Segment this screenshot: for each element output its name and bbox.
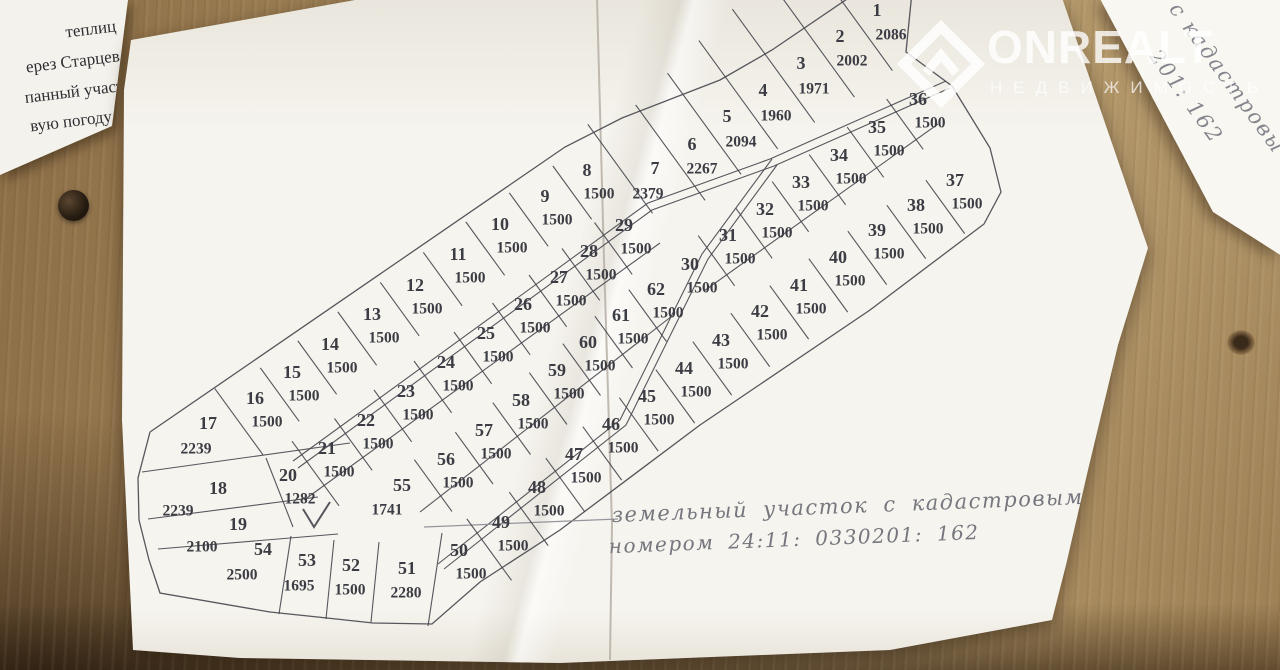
plot-number: 57 <box>475 420 493 440</box>
plot-number: 56 <box>437 449 455 469</box>
plot-divider-line <box>428 533 442 626</box>
plot-area: 1500 <box>584 186 615 203</box>
plot-divider-line <box>158 534 338 549</box>
plot-number: 36 <box>909 89 927 109</box>
cadastral-plan-drawing: 1722391615001515001415001315001215001115… <box>0 0 1280 670</box>
plot-area: 1500 <box>687 280 718 297</box>
plot-area: 1500 <box>757 327 788 344</box>
plot-number: 21 <box>318 438 336 458</box>
plot-area: 2100 <box>187 539 218 556</box>
plot-divider-line <box>279 536 291 614</box>
plot-number: 17 <box>199 413 217 433</box>
plot-number: 22 <box>357 410 375 430</box>
plot-area: 1500 <box>621 241 652 258</box>
plot-area: 1500 <box>252 414 283 431</box>
plot-number: 25 <box>477 323 495 343</box>
plot-number: 59 <box>548 360 566 380</box>
plot-area: 1500 <box>443 378 474 395</box>
plot-number: 32 <box>756 199 774 219</box>
plot-area: 1500 <box>403 407 434 424</box>
plot-number: 53 <box>298 550 316 570</box>
plot-area: 1500 <box>608 440 639 457</box>
plot-area: 1500 <box>644 412 675 429</box>
plot-number: 52 <box>342 555 360 575</box>
plot-area: 2086 <box>876 27 907 44</box>
plot-number: 29 <box>615 215 633 235</box>
plot-divider-line <box>371 542 379 622</box>
plot-number: 27 <box>550 267 568 287</box>
plot-area: 1500 <box>324 464 355 481</box>
plot-area: 1500 <box>681 384 712 401</box>
plot-area: 1500 <box>412 301 443 318</box>
plot-area: 1500 <box>556 293 587 310</box>
plot-area: 2239 <box>163 503 194 520</box>
plot-number: 5 <box>723 106 732 126</box>
plot-area: 2002 <box>837 53 868 70</box>
plot-number: 19 <box>229 514 247 534</box>
plot-number: 35 <box>868 117 886 137</box>
plot-number: 15 <box>283 362 301 382</box>
plot-number: 33 <box>792 172 810 192</box>
plot-number: 42 <box>751 301 769 321</box>
plot-area: 1500 <box>835 273 866 290</box>
plot-area: 1500 <box>718 356 749 373</box>
plot-number: 23 <box>397 381 415 401</box>
plot-area: 2379 <box>633 186 664 203</box>
plot-number: 26 <box>514 294 532 314</box>
plot-number: 50 <box>450 540 468 560</box>
plot-number: 45 <box>638 386 656 406</box>
plot-number: 40 <box>829 247 847 267</box>
plot-area: 1500 <box>518 416 549 433</box>
plot-area: 1500 <box>534 503 565 520</box>
plot-number: 9 <box>541 186 550 206</box>
plot-number: 3 <box>797 53 806 73</box>
plot-area: 1500 <box>554 386 585 403</box>
plot-number: 31 <box>719 225 737 245</box>
plot-area: 1500 <box>497 240 528 257</box>
plot-area: 2500 <box>227 567 258 584</box>
plot-number: 46 <box>602 414 620 434</box>
plot-number: 11 <box>449 244 466 264</box>
plot-area: 1500 <box>443 475 474 492</box>
plot-number: 7 <box>651 158 660 178</box>
plot-area: 1500 <box>836 171 867 188</box>
plot-number: 48 <box>528 477 546 497</box>
plot-area: 1500 <box>874 143 905 160</box>
plot-area: 1500 <box>369 330 400 347</box>
plot-number: 34 <box>830 145 848 165</box>
plot-number: 6 <box>688 134 697 154</box>
plot-number: 10 <box>491 214 509 234</box>
note-connector-line <box>424 519 618 527</box>
plot-area: 1500 <box>542 212 573 229</box>
plot-number: 18 <box>209 478 227 498</box>
plot-area: 1500 <box>586 267 617 284</box>
plot-number: 24 <box>437 352 455 372</box>
plot-area: 1500 <box>762 225 793 242</box>
plot-number: 37 <box>946 170 964 190</box>
plot-area: 1500 <box>456 566 487 583</box>
plot-area: 1282 <box>285 491 316 508</box>
plot-area: 1500 <box>952 196 983 213</box>
plot-area: 2239 <box>181 441 212 458</box>
plot-area: 1500 <box>915 115 946 132</box>
plot-number: 51 <box>398 558 416 578</box>
plot-number: 28 <box>580 241 598 261</box>
plot-number: 38 <box>907 195 925 215</box>
plot-number: 12 <box>406 275 424 295</box>
plot-number: 8 <box>583 160 592 180</box>
plot-area: 1500 <box>455 270 486 287</box>
plot-number: 60 <box>579 332 597 352</box>
plot-area: 1500 <box>483 349 514 366</box>
plot-number: 20 <box>279 465 297 485</box>
plot-number: 62 <box>647 279 665 299</box>
plot-divider-line <box>326 540 334 619</box>
plot-number: 58 <box>512 390 530 410</box>
plot-number: 30 <box>681 254 699 274</box>
plot-number: 55 <box>393 475 411 495</box>
plot-area: 1500 <box>481 446 512 463</box>
plot-number: 41 <box>790 275 808 295</box>
plot-number: 16 <box>246 388 264 408</box>
plot-area: 1500 <box>725 251 756 268</box>
plot-number: 43 <box>712 330 730 350</box>
road-line <box>293 81 946 461</box>
plot-area: 1500 <box>874 246 905 263</box>
plot-number: 13 <box>363 304 381 324</box>
plot-area: 2280 <box>391 585 422 602</box>
plot-area: 1971 <box>799 81 830 98</box>
plot-number: 54 <box>254 539 272 559</box>
plot-area: 1500 <box>520 320 551 337</box>
plot-area: 1500 <box>327 360 358 377</box>
plot-area: 1500 <box>913 221 944 238</box>
plot-area: 1500 <box>798 198 829 215</box>
plot-area: 1960 <box>761 108 792 125</box>
plot-area: 1741 <box>372 502 403 519</box>
plot-area: 1500 <box>618 331 649 348</box>
plot-area: 1500 <box>335 582 366 599</box>
plot-area: 1500 <box>363 436 394 453</box>
photo-of-cadastral-plan: теплиц ерез Старцев панный участ вую пог… <box>0 0 1280 670</box>
plot-area: 1500 <box>585 358 616 375</box>
plot-area: 1500 <box>571 470 602 487</box>
plot-number: 44 <box>675 358 693 378</box>
plot-area: 1500 <box>289 388 320 405</box>
plot-number: 61 <box>612 305 630 325</box>
plot-area: 1500 <box>796 301 827 318</box>
plot-area: 2094 <box>726 134 757 151</box>
plot-number: 39 <box>868 220 886 240</box>
plot-area: 1695 <box>284 578 315 595</box>
plot-number: 4 <box>759 80 768 100</box>
plot-number: 1 <box>873 0 882 20</box>
plot-number: 47 <box>565 444 583 464</box>
plot-area: 1500 <box>653 305 684 322</box>
plot-area: 2267 <box>687 161 718 178</box>
plot-area: 1500 <box>498 538 529 555</box>
plot-number: 2 <box>836 26 845 46</box>
plot-number: 49 <box>492 512 510 532</box>
plot-number: 14 <box>321 334 339 354</box>
